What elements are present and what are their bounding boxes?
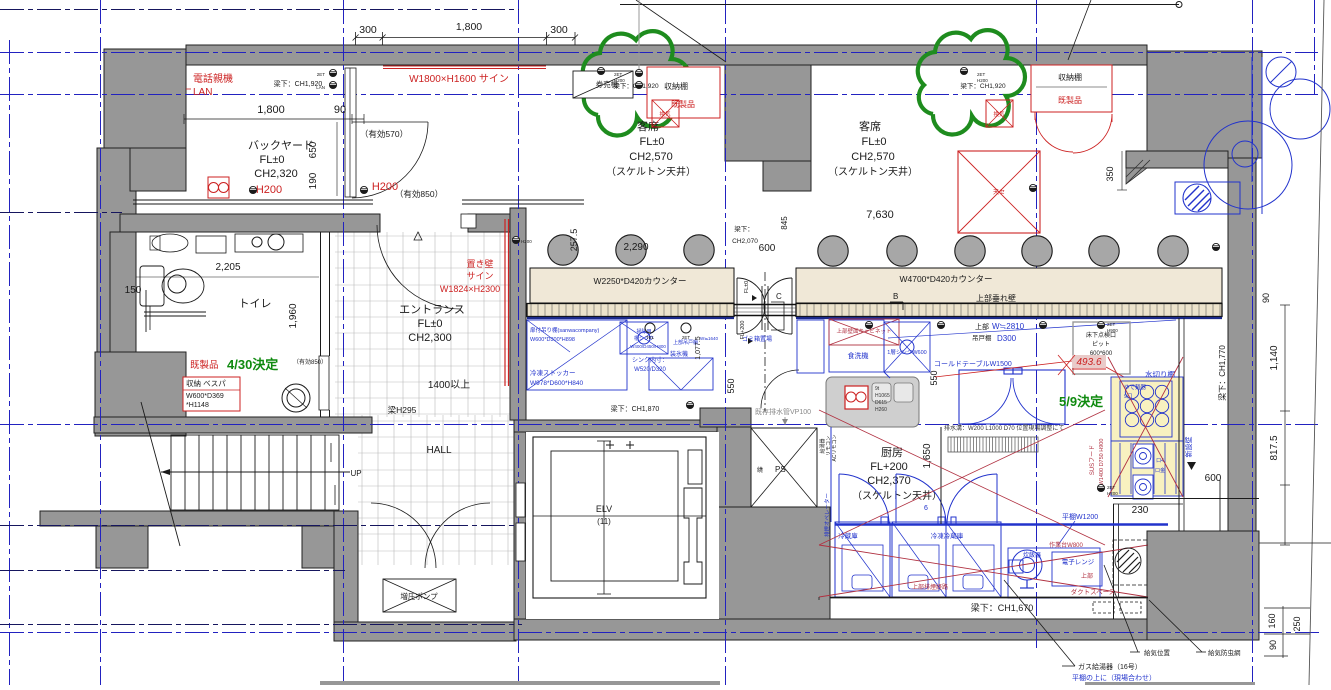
svg-text:190: 190 [308, 172, 319, 189]
svg-text:550: 550 [726, 378, 736, 393]
svg-text:UP: UP [350, 469, 361, 478]
svg-text:B: B [893, 292, 898, 301]
svg-text:1,140: 1,140 [1269, 345, 1280, 370]
svg-text:W600*D369: W600*D369 [186, 393, 224, 400]
svg-text:817.5: 817.5 [1269, 435, 1280, 460]
svg-text:客席: 客席 [859, 119, 881, 133]
svg-text:（有効850）: （有効850） [395, 189, 443, 199]
svg-text:給気防虫網: 給気防虫網 [1208, 648, 1241, 657]
svg-text:CH2,320: CH2,320 [254, 168, 297, 180]
svg-text:冷凍冷蔵庫: 冷凍冷蔵庫 [931, 531, 964, 540]
svg-text:2,205: 2,205 [215, 262, 240, 273]
svg-text:口金: 口金 [1155, 467, 1165, 474]
svg-text:換気: 換気 [993, 110, 1005, 118]
svg-text:FL±0: FL±0 [744, 281, 750, 294]
svg-text:掃除用: 掃除用 [636, 328, 651, 335]
svg-text:ゆで麺器: ゆで麺器 [1124, 383, 1147, 391]
svg-text:LAN: LAN [316, 85, 325, 90]
svg-text:既製品: 既製品 [190, 359, 219, 371]
svg-text:350: 350 [1105, 166, 1115, 181]
svg-text:扉付吊り棚(sanwacompany): 扉付吊り棚(sanwacompany) [530, 326, 600, 334]
svg-text:FL±0: FL±0 [862, 136, 887, 148]
svg-text:コールドテーブルW1500: コールドテーブルW1500 [934, 359, 1012, 368]
svg-text:H200: H200 [1107, 491, 1118, 496]
svg-text:増圧ポンプ: 増圧ポンプ [400, 591, 438, 601]
svg-text:作業台W800: 作業台W800 [1049, 541, 1083, 549]
svg-text:HALL: HALL [426, 445, 451, 456]
svg-text:(11): (11) [597, 517, 611, 526]
svg-text:梁H295: 梁H295 [388, 405, 417, 415]
svg-text:収納棚: 収納棚 [664, 81, 688, 91]
svg-text:2ET: 2ET [1107, 322, 1116, 327]
svg-text:平棚W1200: 平棚W1200 [1062, 512, 1098, 521]
svg-text:W1800×H1600 サイン: W1800×H1600 サイン [409, 73, 509, 85]
svg-text:H200: H200 [614, 78, 625, 83]
svg-text:ACリモコン: ACリモコン [832, 435, 838, 462]
svg-text:冷凍ストッカー: 冷凍ストッカー [530, 368, 576, 377]
svg-text:上部: 上部 [1081, 572, 1093, 580]
svg-text:客席: 客席 [637, 119, 659, 133]
svg-text:バックヤード: バックヤード [248, 139, 314, 152]
svg-text:1,650: 1,650 [922, 443, 933, 468]
svg-text:梁下：CH1,920: 梁下：CH1,920 [274, 79, 323, 88]
svg-text:493.6: 493.6 [1076, 357, 1101, 368]
svg-text:1,800: 1,800 [257, 104, 285, 116]
svg-text:換気: 換気 [659, 110, 671, 118]
svg-text:（スケルトン天井）: （スケルトン天井） [852, 489, 942, 502]
svg-text:90: 90 [1268, 640, 1278, 650]
svg-text:W2250*D420カウンター: W2250*D420カウンター [593, 276, 686, 286]
svg-text:電話親機: 電話親機 [193, 72, 233, 85]
svg-text:1層シンクW600: 1層シンクW600 [887, 349, 926, 356]
svg-text:給湯器: 給湯器 [819, 438, 826, 453]
svg-text:90: 90 [334, 104, 346, 116]
svg-text:電子レンジ: 電子レンジ [1062, 558, 1095, 566]
svg-text:W600*D300*H898: W600*D300*H898 [530, 337, 575, 343]
svg-text:845: 845 [780, 216, 789, 230]
svg-text:H200: H200 [977, 78, 988, 83]
svg-text:6: 6 [924, 505, 928, 512]
svg-text:1,800: 1,800 [456, 21, 482, 33]
svg-text:C: C [776, 292, 782, 301]
svg-text:1,960: 1,960 [288, 303, 299, 328]
svg-text:（スケルトン天井）: （スケルトン天井） [606, 165, 696, 178]
svg-text:*H1148: *H1148 [186, 402, 209, 409]
svg-text:上部: 上部 [975, 322, 989, 331]
svg-text:新設壁: 新設壁 [1184, 437, 1193, 458]
svg-text:CH2,570: CH2,570 [629, 151, 672, 163]
svg-text:W1400 D750 H900: W1400 D750 H900 [1099, 439, 1105, 486]
svg-text:650: 650 [308, 141, 319, 158]
svg-text:250: 250 [1292, 616, 1302, 631]
svg-text:FL±0: FL±0 [260, 154, 285, 166]
svg-text:上部垂れ壁: 上部垂れ壁 [976, 293, 1016, 303]
svg-text:エントランス: エントランス [399, 304, 465, 316]
svg-text:梁下：CH1,870: 梁下：CH1,870 [611, 404, 660, 413]
svg-text:梁下：CH1,770: 梁下：CH1,770 [1218, 345, 1227, 401]
svg-text:ゴミ箱置場: ゴミ箱置場 [742, 335, 772, 343]
svg-text:炊飯器: 炊飯器 [1023, 551, 1041, 559]
svg-text:600: 600 [1205, 473, 1222, 484]
svg-text:平棚の上に（現場合わせ）: 平棚の上に（現場合わせ） [1072, 673, 1156, 682]
svg-text:CH2,070: CH2,070 [732, 238, 758, 245]
svg-text:上部壁面キャビネット: 上部壁面キャビネット [836, 327, 891, 335]
svg-text:置き壁: 置き壁 [466, 258, 493, 269]
svg-text:FL±0: FL±0 [640, 136, 665, 148]
svg-text:300: 300 [550, 24, 568, 36]
svg-text:収納棚: 収納棚 [1058, 72, 1082, 82]
svg-text:ピット: ピット [1092, 341, 1110, 348]
svg-text:2ET: 2ET [317, 72, 326, 77]
svg-text:吊戸棚: 吊戸棚 [972, 333, 992, 342]
svg-text:PS: PS [775, 465, 786, 474]
svg-text:給気位置: 給気位置 [1144, 648, 1171, 657]
svg-text:FL+200: FL+200 [870, 461, 908, 473]
svg-text:シンク内寸：: シンク内寸： [632, 356, 668, 364]
svg-text:150: 150 [125, 285, 142, 296]
svg-text:600: 600 [759, 243, 776, 254]
svg-text:W400/D450/H800: W400/D450/H800 [630, 344, 666, 349]
svg-text:天セ: 天セ [993, 189, 1005, 196]
svg-text:90: 90 [1261, 293, 1271, 303]
svg-text:（有効570）: （有効570） [360, 129, 408, 139]
svg-text:上部排煙経路: 上部排煙経路 [912, 583, 948, 591]
svg-text:サイン: サイン [466, 271, 493, 281]
svg-text:230: 230 [1132, 505, 1149, 516]
svg-text:2ET: 2ET [1107, 485, 1116, 490]
svg-text:既製品: 既製品 [1058, 95, 1082, 105]
svg-text:繞: 繞 [757, 466, 763, 474]
svg-text:5/9決定: 5/9決定 [1059, 394, 1103, 409]
svg-text:W1824×H2300: W1824×H2300 [440, 284, 500, 294]
svg-text:550: 550 [929, 370, 939, 385]
svg-text:H200: H200 [521, 239, 532, 244]
svg-text:257.5: 257.5 [569, 229, 579, 252]
svg-text:（スケルトン天井）: （スケルトン天井） [828, 165, 918, 178]
svg-text:トイレ: トイレ [239, 298, 272, 310]
svg-text:H200: H200 [256, 184, 282, 196]
svg-text:300: 300 [359, 24, 377, 36]
svg-text:W≒1640: W≒1640 [700, 336, 719, 341]
svg-text:排水溝：W200 L1000 D70 位置現場調整にて: 排水溝：W200 L1000 D70 位置現場調整にて [944, 424, 1064, 432]
svg-text:D615: D615 [875, 400, 887, 406]
svg-text:H900: H900 [1107, 328, 1118, 333]
svg-text:排煙オペレーター: 排煙オペレーター [823, 493, 831, 537]
svg-text:食洗機: 食洗機 [848, 351, 869, 360]
svg-text:W4700*D420カウンター: W4700*D420カウンター [899, 274, 992, 284]
svg-text:CH2,300: CH2,300 [408, 332, 451, 344]
svg-text:冷蔵庫: 冷蔵庫 [838, 531, 858, 540]
svg-text:TEL: TEL [646, 335, 655, 340]
svg-text:H1065: H1065 [875, 393, 890, 399]
svg-text:LAN: LAN [193, 87, 212, 98]
svg-text:W978*D600*H840: W978*D600*H840 [530, 380, 584, 387]
svg-text:ELV: ELV [596, 504, 612, 514]
svg-text:1400以上: 1400以上 [428, 379, 470, 391]
svg-text:CH2,570: CH2,570 [851, 151, 894, 163]
svg-text:7,630: 7,630 [866, 209, 894, 221]
svg-text:既存排水管VP100: 既存排水管VP100 [755, 407, 811, 416]
svg-text:H260: H260 [875, 407, 887, 413]
svg-text:SUSフード: SUSフード [1089, 445, 1096, 475]
svg-text:FL±0: FL±0 [418, 318, 443, 330]
svg-text:ガス給湯器（16号）: ガス給湯器（16号） [1078, 662, 1142, 671]
svg-text:1,077.5: 1,077.5 [695, 336, 702, 359]
svg-text:2ET: 2ET [977, 72, 986, 77]
svg-text:9t: 9t [875, 386, 880, 392]
svg-text:4/30決定: 4/30決定 [227, 357, 278, 372]
svg-text:W520/D320: W520/D320 [634, 367, 666, 373]
svg-text:装氷機: 装氷機 [670, 350, 688, 358]
svg-text:2ET: 2ET [614, 72, 623, 77]
svg-text:2,290: 2,290 [623, 242, 648, 253]
svg-text:（有効850）: （有効850） [293, 358, 327, 366]
svg-text:D300: D300 [997, 334, 1017, 343]
svg-text:梁下：: 梁下： [734, 224, 754, 233]
svg-text:160: 160 [1267, 613, 1277, 628]
svg-text:CH2,370: CH2,370 [867, 475, 910, 487]
svg-text:収納 ベスパ: 収納 ベスパ [186, 378, 226, 388]
